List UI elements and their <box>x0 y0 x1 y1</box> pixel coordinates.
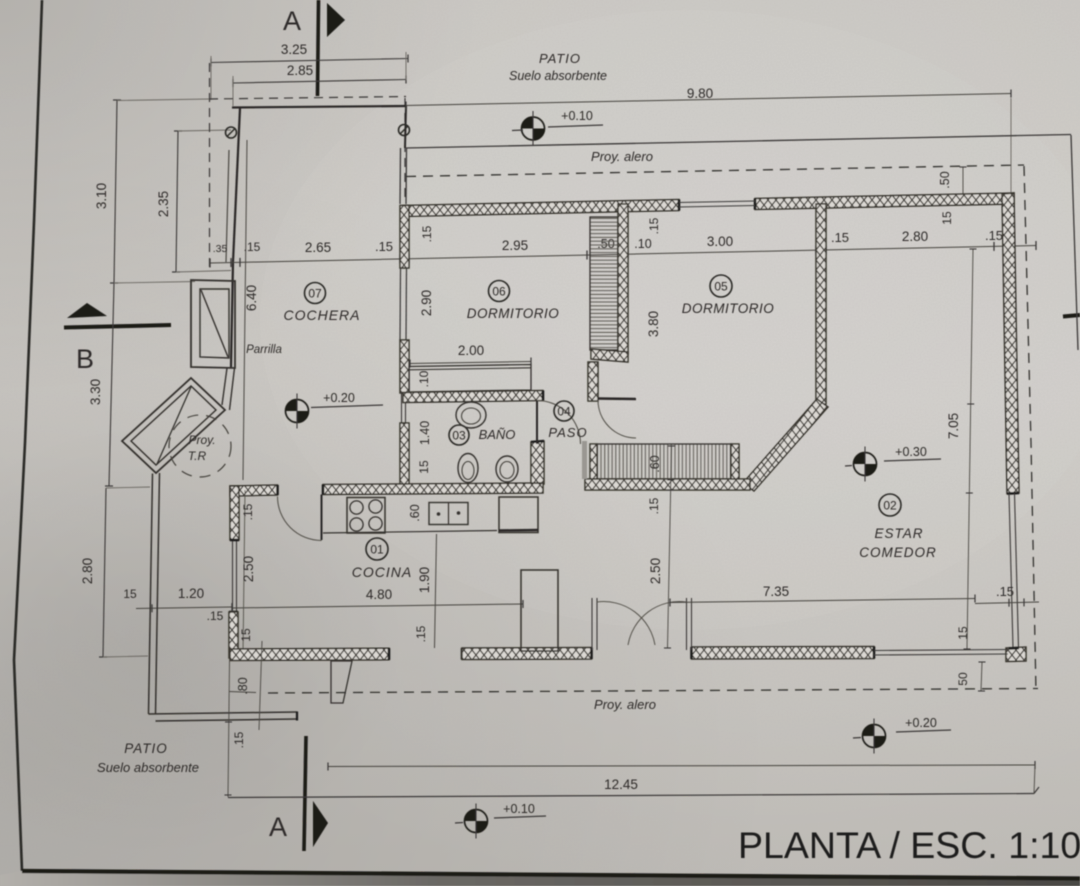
svg-text:02: 02 <box>883 498 897 512</box>
svg-text:.15: .15 <box>414 625 428 642</box>
svg-text:+0.20: +0.20 <box>323 391 355 405</box>
svg-text:Suelo absorbente: Suelo absorbente <box>97 760 199 775</box>
svg-text:.15: .15 <box>241 503 255 520</box>
svg-text:PATIO: PATIO <box>539 51 581 66</box>
svg-text:2.80: 2.80 <box>902 229 928 244</box>
svg-text:1.20: 1.20 <box>178 586 204 601</box>
svg-text:7.05: 7.05 <box>946 413 961 439</box>
svg-text:3.30: 3.30 <box>88 379 103 405</box>
svg-text:3.10: 3.10 <box>94 183 109 209</box>
svg-text:Parrilla: Parrilla <box>246 344 282 356</box>
svg-text:.15: .15 <box>420 225 434 242</box>
svg-text:Proy.: Proy. <box>188 433 215 447</box>
svg-text:06: 06 <box>492 284 506 298</box>
svg-text:.15: .15 <box>996 584 1014 599</box>
svg-text:A: A <box>283 6 301 36</box>
svg-text:.50: .50 <box>938 171 952 188</box>
svg-text:Proy. alero: Proy. alero <box>594 697 656 712</box>
svg-text:4.80: 4.80 <box>366 587 392 602</box>
svg-text:A: A <box>269 812 287 842</box>
svg-text:03: 03 <box>452 428 466 442</box>
svg-text:6.40: 6.40 <box>244 285 259 311</box>
svg-text:1.40: 1.40 <box>418 421 432 445</box>
svg-text:05: 05 <box>714 279 728 293</box>
svg-text:12.45: 12.45 <box>604 777 638 792</box>
svg-text:.15: .15 <box>207 609 224 623</box>
svg-text:9.80: 9.80 <box>687 86 713 101</box>
svg-text:.15: .15 <box>647 497 661 514</box>
svg-text:2.50: 2.50 <box>241 556 256 582</box>
svg-text:+0.10: +0.10 <box>503 802 535 816</box>
svg-text:B: B <box>76 344 94 374</box>
svg-text:50: 50 <box>956 672 970 686</box>
svg-text:.10: .10 <box>634 237 651 251</box>
svg-text:COCINA: COCINA <box>352 564 412 580</box>
svg-text:DORMITORIO: DORMITORIO <box>682 301 775 316</box>
svg-text:PATIO: PATIO <box>124 741 168 756</box>
svg-text:01: 01 <box>370 542 384 556</box>
svg-text:15: 15 <box>239 628 253 642</box>
svg-text:COCHERA: COCHERA <box>283 307 360 323</box>
svg-text:2.85: 2.85 <box>287 63 313 78</box>
svg-text:.10: .10 <box>417 370 431 387</box>
svg-text:15: 15 <box>417 460 431 474</box>
svg-text:.15: .15 <box>985 228 1003 243</box>
svg-text:2.65: 2.65 <box>305 240 331 255</box>
svg-text:2.00: 2.00 <box>458 343 484 358</box>
svg-text:.15: .15 <box>232 731 246 748</box>
svg-text:.60: .60 <box>648 455 662 472</box>
svg-text:2.50: 2.50 <box>648 558 663 584</box>
svg-text:PLANTA / ESC. 1:100: PLANTA / ESC. 1:100 <box>738 824 1080 866</box>
svg-text:Suelo absorbente: Suelo absorbente <box>509 69 607 83</box>
svg-text:.15: .15 <box>375 239 393 254</box>
svg-text:3.00: 3.00 <box>707 234 733 249</box>
svg-text:.15: .15 <box>647 217 661 234</box>
svg-text:+0.20: +0.20 <box>905 716 937 730</box>
svg-text:2.95: 2.95 <box>502 238 528 253</box>
svg-text:15: 15 <box>123 587 137 601</box>
svg-text:T.R: T.R <box>188 449 207 463</box>
svg-text:04: 04 <box>557 404 571 418</box>
svg-text:.35: .35 <box>213 243 228 255</box>
svg-text:.60: .60 <box>408 504 422 521</box>
svg-text:COMEDOR: COMEDOR <box>859 545 937 560</box>
svg-text:DORMITORIO: DORMITORIO <box>467 306 560 321</box>
svg-text:15: 15 <box>956 626 970 640</box>
svg-text:.80: .80 <box>236 677 250 694</box>
svg-text:7.35: 7.35 <box>763 584 789 599</box>
svg-text:3.80: 3.80 <box>646 311 661 337</box>
svg-text:BAÑO: BAÑO <box>479 427 516 442</box>
svg-text:2.90: 2.90 <box>419 290 434 316</box>
svg-text:07: 07 <box>308 286 322 300</box>
svg-text:.15: .15 <box>831 230 849 245</box>
svg-text:2.35: 2.35 <box>156 191 171 217</box>
svg-text:2.80: 2.80 <box>80 558 95 584</box>
svg-text:.15: .15 <box>244 240 261 254</box>
svg-text:3.25: 3.25 <box>281 42 307 57</box>
svg-text:Proy. alero: Proy. alero <box>591 149 653 164</box>
svg-text:ESTAR: ESTAR <box>874 526 923 541</box>
svg-text:1.90: 1.90 <box>417 567 432 593</box>
svg-text:PASO: PASO <box>548 425 587 440</box>
svg-text:+0.30: +0.30 <box>895 445 927 459</box>
svg-text:+0.10: +0.10 <box>561 109 593 123</box>
svg-text:15: 15 <box>940 211 954 225</box>
